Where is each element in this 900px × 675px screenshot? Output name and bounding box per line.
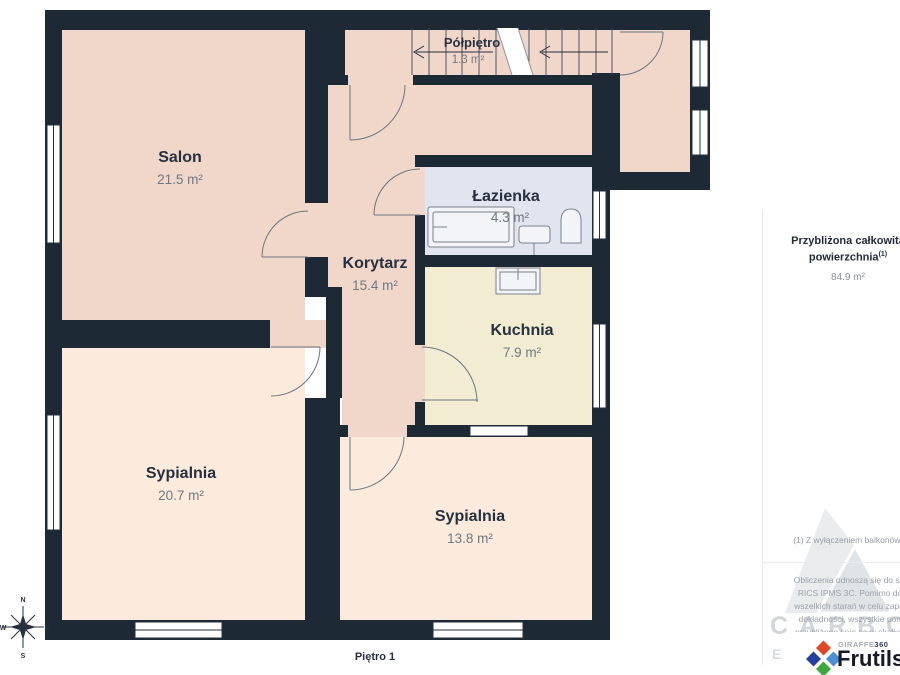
window-salon-left [47, 125, 60, 243]
sidebar-horizontal-divider [762, 562, 900, 563]
disclaimer-line: wszelkich starań w celu zapewnienia [756, 600, 900, 613]
compass-rose: N E S W [0, 597, 50, 660]
kitchen-sink [496, 268, 540, 294]
window-landing-right-2 [692, 110, 708, 155]
polpietro-area: 1.3 m² [452, 54, 485, 66]
bedroom2-floor [340, 437, 592, 620]
floor-label: Piętro 1 [355, 651, 395, 663]
window-landing-right-1 [692, 40, 708, 87]
bedroom1-door-gap [270, 320, 326, 348]
salon-name: Salon [158, 149, 202, 166]
sypialnia1-name: Sypialnia [146, 465, 216, 482]
footnote-marker: (1) [879, 251, 888, 258]
polpietro-name: Półpiętro [444, 35, 500, 50]
bedroom2-door-gap [348, 425, 407, 437]
sypialnia1-area: 20.7 m² [158, 488, 204, 503]
disclaimer-line: dokładności, wszystkie pomiary są [756, 613, 900, 626]
sypialnia2-area: 13.8 m² [447, 531, 493, 546]
area-footnote: (1) Z wyłączeniem balkonów i tarasów [765, 535, 900, 545]
compass-west-label: W [0, 625, 7, 632]
bathroom-sink [561, 209, 581, 243]
salon-door-gap [305, 203, 328, 257]
bathroom-door-gap [415, 167, 425, 215]
total-area-label-line2: powierzchnia(1) [760, 248, 900, 265]
korytarz-area: 15.4 m² [352, 278, 398, 293]
kitchen-door-gap [415, 345, 425, 402]
disclaimer-line: Obliczenia odnoszą się do standardu [756, 574, 900, 587]
stairs-door-gap [348, 75, 413, 85]
salon-area: 21.5 m² [157, 172, 203, 187]
disclaimer-line: RICS IPMS 3C. Pomimo dołożenia [756, 587, 900, 600]
kuchnia-name: Kuchnia [490, 322, 553, 339]
sypialnia2-name: Sypialnia [435, 508, 505, 525]
total-area-summary: Przybliżona całkowita powierzchnia(1) 84… [760, 234, 900, 285]
window-bathroom-right [593, 191, 606, 239]
compass-south-label: S [21, 653, 26, 660]
window-bedroom1-left [47, 415, 60, 530]
korytarz-name: Korytarz [343, 255, 408, 272]
floor-plan: Salon 21.5 m² Półpiętro 1.3 m² Łazienka … [0, 0, 760, 675]
lazienka-area: 4.3 m² [491, 210, 530, 225]
lazienka-name: Łazienka [472, 188, 540, 205]
frutils-logo-text: Frutils [837, 646, 900, 672]
compass-east-label: E [45, 625, 50, 632]
window-bedroom1-bottom [135, 622, 222, 638]
floorplan-page: Salon 21.5 m² Półpiętro 1.3 m² Łazienka … [0, 0, 900, 675]
total-area-label-line1: Przybliżona całkowita [760, 234, 900, 248]
bedroom1-floor [62, 348, 305, 620]
window-kitchen-right [593, 324, 606, 408]
compass-north-label: N [20, 597, 25, 604]
window-bedroom2-bottom [433, 622, 523, 638]
total-area-value: 84.9 m² [760, 271, 900, 285]
landing-floor [613, 30, 690, 172]
window-kitchen-sill [470, 426, 528, 436]
kuchnia-area: 7.9 m² [503, 345, 542, 360]
